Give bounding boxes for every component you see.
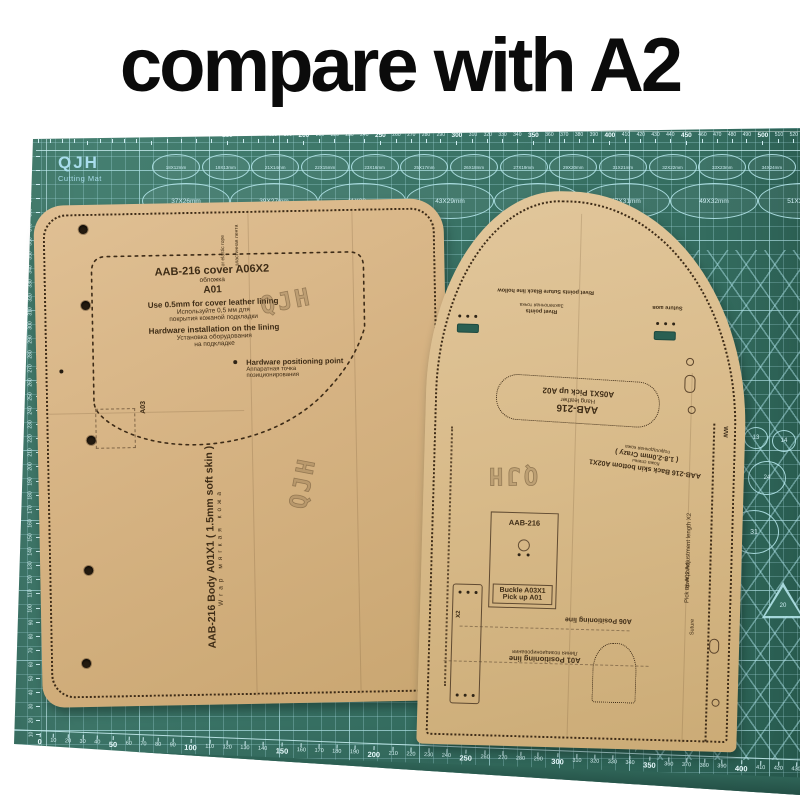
ruler-number: 350 bbox=[643, 761, 656, 769]
ruler-number: 210 bbox=[389, 752, 398, 758]
ruler-tick: 10 bbox=[50, 734, 57, 747]
elastic-rope-note: or elastic rope bbox=[219, 210, 226, 266]
ruler-tick: 0 bbox=[37, 733, 42, 746]
rivet-dots bbox=[656, 322, 675, 326]
ruler-tick: 240 bbox=[442, 749, 452, 762]
ruler-tick: 190 bbox=[350, 745, 360, 758]
ruler-tick: 230 bbox=[424, 748, 434, 761]
zigzag-mark: WW bbox=[722, 426, 728, 437]
ruler-tick: 340 bbox=[625, 756, 635, 769]
ruler-number: 270 bbox=[498, 756, 507, 762]
mat-shape-label: 20 bbox=[780, 603, 787, 609]
ruler-tick: 40 bbox=[94, 735, 101, 748]
suture-strip-label: Suture bbox=[689, 619, 695, 635]
ruler-tick: 280 bbox=[516, 752, 526, 765]
mat-shape-label: 31 bbox=[750, 529, 758, 536]
ruler-number: 10 bbox=[36, 133, 42, 138]
ruler-number: 130 bbox=[240, 746, 249, 752]
ruler-tick: 330 bbox=[608, 755, 618, 768]
ruler-number: 40 bbox=[72, 133, 78, 138]
hardware-positioning-dot bbox=[233, 360, 237, 364]
ruler-number: 30 bbox=[79, 740, 85, 746]
ruler-number: 110 bbox=[205, 745, 214, 751]
ruler-number: 160 bbox=[297, 748, 306, 754]
ruler-number: 370 bbox=[682, 763, 691, 769]
elastic-rope-note-ru: эластичная лента bbox=[233, 210, 240, 266]
cutout-slot bbox=[457, 323, 479, 333]
mat-shape-label: 13 bbox=[753, 435, 760, 441]
ruler-tick: 180 bbox=[332, 744, 342, 757]
ruler-tick: 20 bbox=[65, 734, 72, 747]
ruler-number: 240 bbox=[442, 754, 451, 760]
ruler-tick: 50 bbox=[109, 736, 118, 749]
ruler-number: 190 bbox=[350, 750, 359, 756]
pocket-outline bbox=[95, 408, 136, 449]
ruler-number: 380 bbox=[699, 764, 708, 770]
ruler-number: 20 bbox=[65, 739, 71, 745]
buckle-title: AAB-216 bbox=[491, 517, 557, 528]
ruler-number: 330 bbox=[608, 760, 617, 766]
ruler-tick: 200 bbox=[367, 746, 380, 759]
mat-shape-label: 24 bbox=[764, 475, 771, 481]
ruler-number: 430 bbox=[791, 767, 800, 773]
small-punch-dot bbox=[59, 369, 63, 373]
ruler-tick: 140 bbox=[258, 742, 268, 755]
ruler-number: 10 bbox=[50, 739, 56, 745]
ruler-number: 220 bbox=[406, 752, 415, 758]
ruler-number: 340 bbox=[625, 761, 634, 767]
ruler-tick: 390 bbox=[717, 759, 727, 772]
ruler-tick: 210 bbox=[388, 747, 398, 760]
mat-shape: 20 bbox=[762, 582, 800, 618]
banner-title: compare with A2 bbox=[120, 22, 680, 109]
ruler-tick: 310 bbox=[572, 754, 582, 767]
ruler-number: 320 bbox=[590, 759, 599, 765]
ruler-number: 100 bbox=[184, 744, 197, 752]
rivet-dots bbox=[458, 314, 477, 318]
ruler-number: 420 bbox=[774, 766, 783, 772]
ruler-number: 90 bbox=[134, 133, 140, 138]
strip-x2-label: X2 bbox=[456, 610, 462, 618]
ruler-number: 390 bbox=[717, 764, 726, 770]
ruler-tick: 380 bbox=[699, 759, 709, 772]
buckle-dots bbox=[491, 552, 557, 557]
ruler-tick: 300 bbox=[551, 753, 564, 766]
product-photo-scene: compare with A2 QJH Cutting Mat 10 20 30 bbox=[0, 0, 800, 800]
mat-shape-label: 14 bbox=[781, 438, 788, 444]
ruler-tick: 60 bbox=[126, 737, 133, 750]
hardware-positioning-note: Hardware positioning point Аппаратная то… bbox=[246, 355, 386, 379]
ruler-number: 260 bbox=[480, 755, 489, 761]
ruler-tick: 100 bbox=[184, 739, 197, 752]
strip-dots bbox=[454, 590, 482, 594]
mat-shape: 24 bbox=[748, 461, 786, 495]
ruler-number: 360 bbox=[664, 762, 673, 768]
ruler-number: 80 bbox=[122, 133, 128, 138]
right-kraft-template: Rivet points Suture Black line hollow Ri… bbox=[416, 188, 751, 753]
buckle-pattern-outline: AAB-216 Buckle A03X1 Pick up A01 bbox=[488, 511, 559, 609]
ruler-tick: 350 bbox=[643, 756, 656, 769]
ruler-tick: 430 bbox=[791, 762, 800, 775]
buckle-hole-outline bbox=[518, 539, 530, 551]
ruler-tick: 160 bbox=[297, 743, 307, 756]
ruler-tick: 70 bbox=[140, 737, 147, 750]
punch-hole bbox=[84, 566, 93, 575]
ruler-number: 290 bbox=[533, 757, 542, 763]
side-strip-outline: X2 bbox=[449, 583, 482, 704]
ruler-tick: 220 bbox=[406, 747, 416, 760]
ruler-number: 80 bbox=[155, 743, 161, 749]
ruler-number: 410 bbox=[756, 766, 765, 772]
oval-slot bbox=[709, 639, 719, 654]
ruler-tick: 420 bbox=[774, 761, 784, 774]
ruler-number: 40 bbox=[94, 740, 100, 746]
ruler-tick: 120 bbox=[222, 740, 232, 753]
ruler-tick: 170 bbox=[314, 744, 324, 757]
ruler-tick: 90 bbox=[169, 738, 176, 751]
ruler-tick: 130 bbox=[240, 741, 250, 754]
ruler-tick: 410 bbox=[756, 761, 766, 774]
ruler-tick: 400 bbox=[735, 760, 748, 773]
ruler-number: 200 bbox=[367, 751, 380, 759]
ruler-tick: 360 bbox=[664, 757, 674, 770]
ruler-number: 20 bbox=[48, 133, 54, 138]
mat-shape: 13 bbox=[744, 427, 768, 449]
title-banner: compare with A2 bbox=[0, 0, 800, 130]
ruler-number: 140 bbox=[258, 747, 267, 753]
buckle-label-box: Buckle A03X1 Pick up A01 bbox=[492, 583, 553, 605]
cutout-slot bbox=[654, 331, 676, 341]
ruler-tick: 270 bbox=[498, 751, 508, 764]
rivet-points-note: Rivet points Заклепочная точка bbox=[506, 301, 576, 315]
ruler-tick: 260 bbox=[480, 750, 490, 763]
ruler-number: 280 bbox=[516, 757, 525, 763]
ruler-number: 300 bbox=[551, 758, 564, 766]
ruler-number: 50 bbox=[109, 741, 118, 749]
ruler-number: 0 bbox=[37, 738, 41, 746]
ruler-number: 60 bbox=[98, 133, 104, 138]
ruler-tick: 110 bbox=[205, 740, 214, 753]
ruler-number: 70 bbox=[140, 742, 146, 748]
ruler-number: 120 bbox=[223, 745, 232, 751]
rivet-points-strip-label: Rivet points bbox=[685, 561, 692, 590]
ruler-number: 400 bbox=[735, 765, 748, 773]
strip-dots bbox=[451, 693, 479, 697]
ruler-number: 90 bbox=[170, 743, 176, 749]
ruler-tick: 290 bbox=[533, 752, 543, 765]
ruler-number: 170 bbox=[314, 749, 323, 755]
ruler-number: 60 bbox=[126, 742, 132, 748]
mini-arch-stitch-outline bbox=[592, 642, 638, 703]
ruler-number: 150 bbox=[276, 747, 289, 755]
ruler-number: 250 bbox=[459, 754, 472, 762]
ruler-tick: 370 bbox=[682, 758, 692, 771]
ruler-number: 310 bbox=[572, 759, 581, 765]
ruler-tick: 320 bbox=[590, 754, 600, 767]
ruler-tick: 150 bbox=[276, 742, 289, 755]
left-kraft-template: AAB-216 cover A06X2 обложка A01 Use 0.5m… bbox=[33, 198, 453, 708]
oval-slot bbox=[684, 375, 695, 393]
ruler-tick: 250 bbox=[459, 749, 472, 762]
ruler-number: 230 bbox=[424, 753, 433, 759]
ruler-tick: 80 bbox=[155, 738, 162, 751]
qjh-stamp: QJH bbox=[486, 462, 539, 490]
ruler-number: 30 bbox=[60, 133, 66, 138]
hang-leather-label: AAB-216 Hang leather A05X1 Pick up A02 bbox=[541, 386, 614, 416]
ruler-number: 70 bbox=[110, 133, 116, 138]
mat-shape: 14 bbox=[772, 430, 796, 452]
ruler-number: 180 bbox=[332, 749, 341, 755]
ruler-tick: 30 bbox=[79, 735, 86, 748]
